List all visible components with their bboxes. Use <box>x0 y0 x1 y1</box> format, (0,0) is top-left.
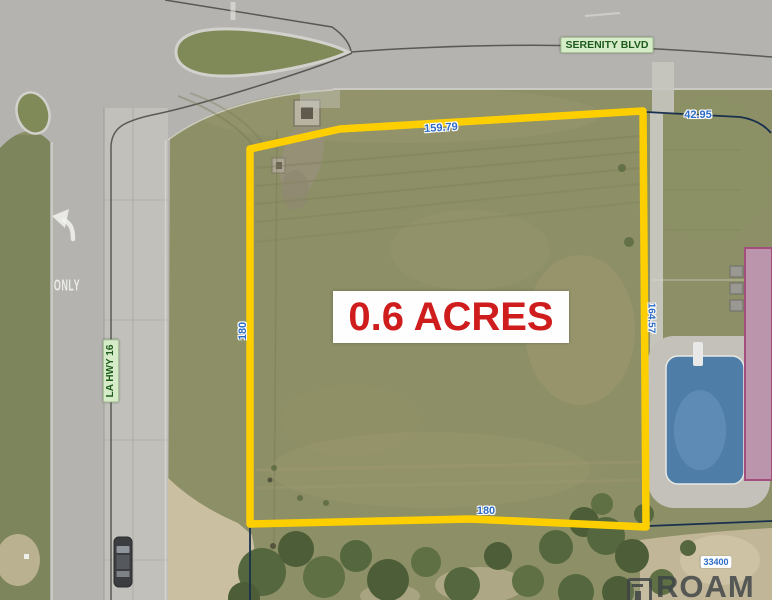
dimension-label-northeast: 42.95 <box>684 109 712 121</box>
dimension-label-bottom: 180 <box>477 505 495 517</box>
diving-board <box>693 342 703 366</box>
road-label-la-hwy-16: LA HWY 16 <box>103 340 119 403</box>
road-label-serenity-blvd: SERENITY BLVD <box>560 37 653 53</box>
parcel-number-label: 33400 <box>700 556 731 568</box>
dimension-label-right: 164.57 <box>646 303 657 334</box>
roam-building-icon <box>627 578 652 600</box>
building-roof <box>745 248 772 480</box>
watermark: ROAM <box>627 572 755 600</box>
dimension-label-top: 159.79 <box>424 121 458 135</box>
watermark-brand-text: ROAM <box>656 572 755 600</box>
only-road-marking: ONLY <box>54 276 80 294</box>
acreage-text: 0.6 ACRES <box>348 295 553 340</box>
aerial-parcel-map: SERENITY BLVD LA HWY 16 ONLY 0.6 ACRES 1… <box>0 0 772 600</box>
utility-sheds <box>730 266 743 311</box>
vehicle <box>114 537 132 587</box>
pool-water-highlight <box>674 390 726 470</box>
dimension-label-left: 180 <box>237 322 249 340</box>
roadside-sign <box>24 554 29 559</box>
acreage-label: 0.6 ACRES <box>333 291 569 343</box>
